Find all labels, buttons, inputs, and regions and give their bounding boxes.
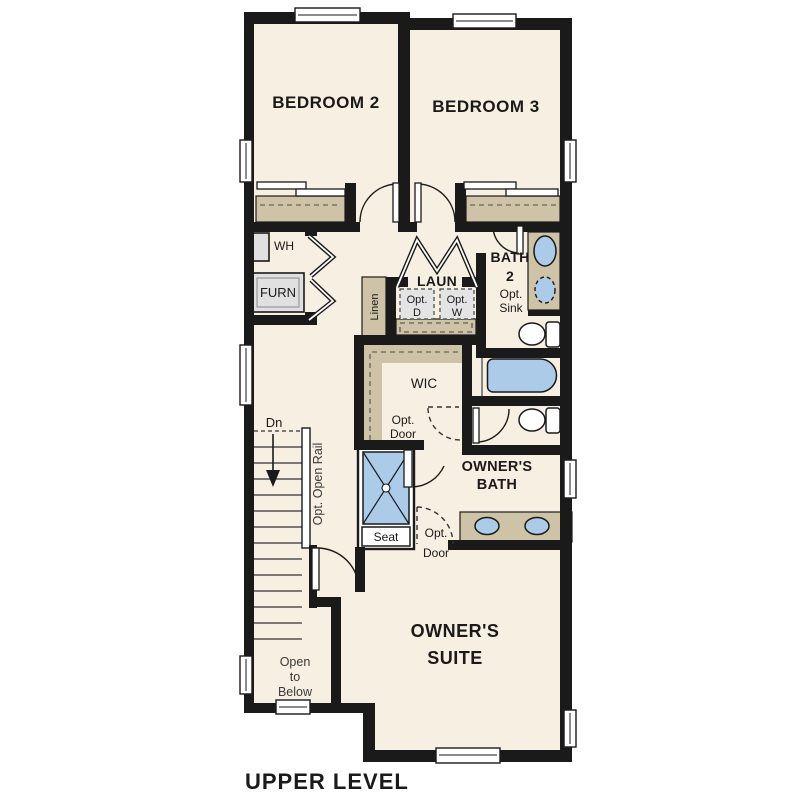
owners-wc-toilet [519, 408, 560, 433]
owners-suite-door [312, 548, 319, 590]
svg-text:SUITE: SUITE [427, 648, 483, 668]
bath2-toilet [519, 322, 560, 347]
wall-hall-row-c [455, 222, 572, 232]
svg-text:Opt.: Opt. [407, 294, 428, 306]
window-open-below-left [240, 656, 252, 694]
svg-text:BATH: BATH [490, 249, 529, 265]
svg-text:OWNER'S: OWNER'S [411, 621, 500, 641]
wall-b3-closet-stub [455, 183, 466, 232]
stair-railing [302, 428, 310, 548]
wall-owners-bath-south [448, 540, 572, 550]
wic-opt-door-label: Opt. Door [390, 413, 416, 441]
owners-bath-sink-1 [475, 518, 499, 535]
window-bedroom3-right [564, 140, 576, 182]
wall-right [560, 18, 572, 762]
svg-text:Sink: Sink [499, 301, 523, 315]
wall-suite-door-jamb [355, 547, 365, 592]
svg-text:Opt.: Opt. [392, 413, 415, 427]
bath2-opt-sink [535, 277, 555, 303]
wic-shelf-left [364, 345, 382, 448]
shower-drain [382, 484, 390, 492]
svg-text:OWNER'S: OWNER'S [462, 459, 533, 475]
opt-sink-label: Opt. Sink [499, 287, 523, 315]
owners-bath-sink-2 [525, 518, 549, 535]
wall-wc-west [462, 340, 472, 455]
bedroom3-closet-shelf [466, 196, 560, 222]
wall-wic-west [354, 335, 364, 450]
window-bedroom2-left [240, 140, 252, 182]
window-stair-left [240, 345, 252, 405]
wall-bedroom-divider [398, 12, 410, 223]
opt-open-rail-label: Opt. Open Rail [311, 443, 325, 526]
laundry-counter [396, 319, 476, 335]
wall-tub-north [476, 348, 572, 358]
window-suite-bottom [436, 748, 500, 763]
bathtub [488, 359, 557, 392]
shower-seat-label: Seat [374, 530, 399, 544]
furnace-label: FURN [260, 285, 296, 300]
svg-text:Below: Below [278, 685, 313, 699]
bedroom3-door [415, 183, 421, 222]
water-heater-label: WH [274, 239, 294, 253]
wall-b2-closet-stub [345, 183, 356, 232]
wall-bath2-west [476, 253, 486, 348]
svg-text:Opt.: Opt. [425, 526, 448, 540]
wall-open-below-east [331, 597, 341, 712]
wall-mech-bottom [244, 315, 317, 325]
wall-tub-south [462, 396, 572, 406]
bath2-vanity-end-wall [528, 310, 560, 316]
svg-text:W: W [452, 307, 463, 319]
svg-text:Open: Open [280, 655, 311, 669]
svg-text:2: 2 [506, 268, 514, 284]
window-owners-bath-right [564, 460, 576, 498]
wall-wc-south [462, 445, 572, 455]
plan-title: UPPER LEVEL [245, 769, 409, 794]
wall-hall-row-b [398, 222, 417, 232]
wall-wic-south [354, 440, 424, 450]
svg-text:BATH: BATH [477, 477, 517, 493]
window-suite-right [564, 710, 576, 747]
window-bedroom3-top [453, 14, 516, 28]
wall-hall-row-a [244, 222, 360, 232]
bedroom2-closet-shelf [256, 196, 345, 222]
svg-text:Opt.: Opt. [500, 287, 523, 301]
shower-door [404, 450, 412, 487]
owners-wc-door [473, 408, 479, 443]
window-open-below-bottom [276, 700, 310, 714]
upper-level-floor-plan: BEDROOM 2 BEDROOM 3 WH FURN LAUN Opt. D … [0, 0, 810, 810]
laundry-label: LAUN [417, 273, 457, 289]
bath2-sink [534, 236, 556, 266]
floor-plan-page: BEDROOM 2 BEDROOM 3 WH FURN LAUN Opt. D … [0, 0, 810, 810]
window-bedroom2-top [295, 8, 360, 22]
svg-text:Door: Door [423, 546, 449, 560]
wall-mech-stub-top [305, 222, 317, 236]
bedroom2-label: BEDROOM 2 [272, 93, 379, 112]
bedroom3-label: BEDROOM 3 [432, 97, 539, 116]
svg-text:Door: Door [390, 427, 416, 441]
svg-text:Opt.: Opt. [447, 294, 468, 306]
linen-label: Linen [369, 294, 381, 321]
svg-text:to: to [290, 670, 300, 684]
svg-text:D: D [413, 307, 421, 319]
wic-label: WIC [411, 376, 437, 391]
stairs-dn-label: Dn [266, 415, 283, 430]
bedroom2-door [393, 183, 399, 222]
